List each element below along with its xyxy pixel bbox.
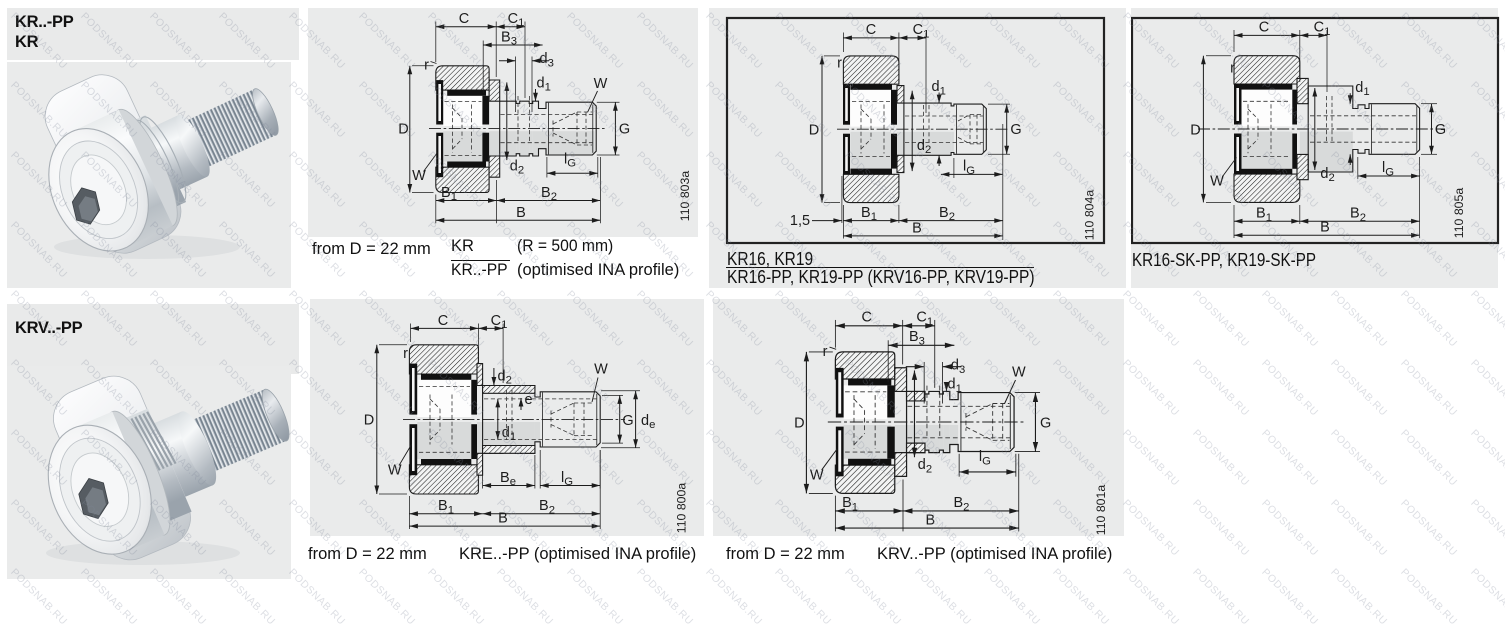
svg-text:lG: lG (561, 470, 573, 488)
svg-text:C: C (862, 310, 872, 326)
svg-text:W: W (594, 76, 608, 92)
svg-text:B2: B2 (954, 495, 970, 514)
svg-text:d3: d3 (540, 51, 554, 69)
svg-text:d2: d2 (918, 457, 932, 476)
svg-text:110 805a: 110 805a (1452, 188, 1466, 239)
svg-text:C1: C1 (1314, 20, 1331, 38)
svg-text:d1: d1 (948, 376, 962, 395)
svg-text:B1: B1 (842, 495, 858, 514)
svg-text:B3: B3 (909, 329, 925, 348)
svg-text:B1: B1 (438, 498, 454, 516)
svg-text:G: G (1435, 122, 1446, 138)
svg-text:B2: B2 (541, 185, 557, 203)
svg-text:r: r (424, 57, 429, 73)
svg-text:Be: Be (500, 470, 516, 488)
svg-text:de: de (641, 413, 655, 431)
svg-text:D: D (1190, 122, 1200, 138)
svg-text:lG: lG (1382, 160, 1394, 178)
svg-text:B: B (498, 511, 508, 527)
svg-text:D: D (794, 416, 804, 432)
svg-text:W: W (1210, 174, 1224, 190)
svg-text:G: G (1040, 415, 1051, 431)
svg-text:D: D (364, 413, 374, 429)
svg-text:W: W (594, 362, 608, 378)
svg-text:B: B (925, 512, 935, 528)
svg-text:d2: d2 (510, 159, 524, 177)
svg-text:r: r (1230, 61, 1235, 77)
svg-text:D: D (398, 122, 408, 138)
svg-text:W: W (1012, 365, 1026, 381)
svg-text:d1: d1 (537, 76, 551, 94)
svg-text:C1: C1 (916, 310, 933, 329)
svg-text:C: C (459, 11, 469, 27)
svg-text:d1: d1 (1355, 80, 1369, 98)
svg-text:W: W (810, 468, 824, 484)
svg-text:C: C (438, 313, 448, 329)
svg-text:C: C (1259, 20, 1269, 36)
svg-text:G: G (622, 413, 633, 429)
svg-text:110 803a: 110 803a (678, 171, 692, 222)
svg-text:r: r (403, 346, 408, 362)
svg-text:B3: B3 (501, 29, 517, 47)
svg-text:B2: B2 (1350, 206, 1366, 224)
svg-text:B1: B1 (1256, 206, 1272, 224)
svg-text:C1: C1 (491, 313, 508, 331)
svg-text:B2: B2 (539, 498, 555, 516)
svg-text:d2: d2 (498, 369, 512, 387)
svg-text:110 800a: 110 800a (675, 483, 689, 534)
svg-text:B: B (516, 205, 526, 221)
svg-text:C1: C1 (508, 11, 525, 29)
svg-text:B: B (1320, 220, 1330, 236)
svg-text:G: G (619, 121, 630, 137)
svg-text:d3: d3 (951, 357, 965, 376)
svg-text:110 801a: 110 801a (1094, 485, 1108, 536)
svg-text:e: e (525, 392, 533, 408)
